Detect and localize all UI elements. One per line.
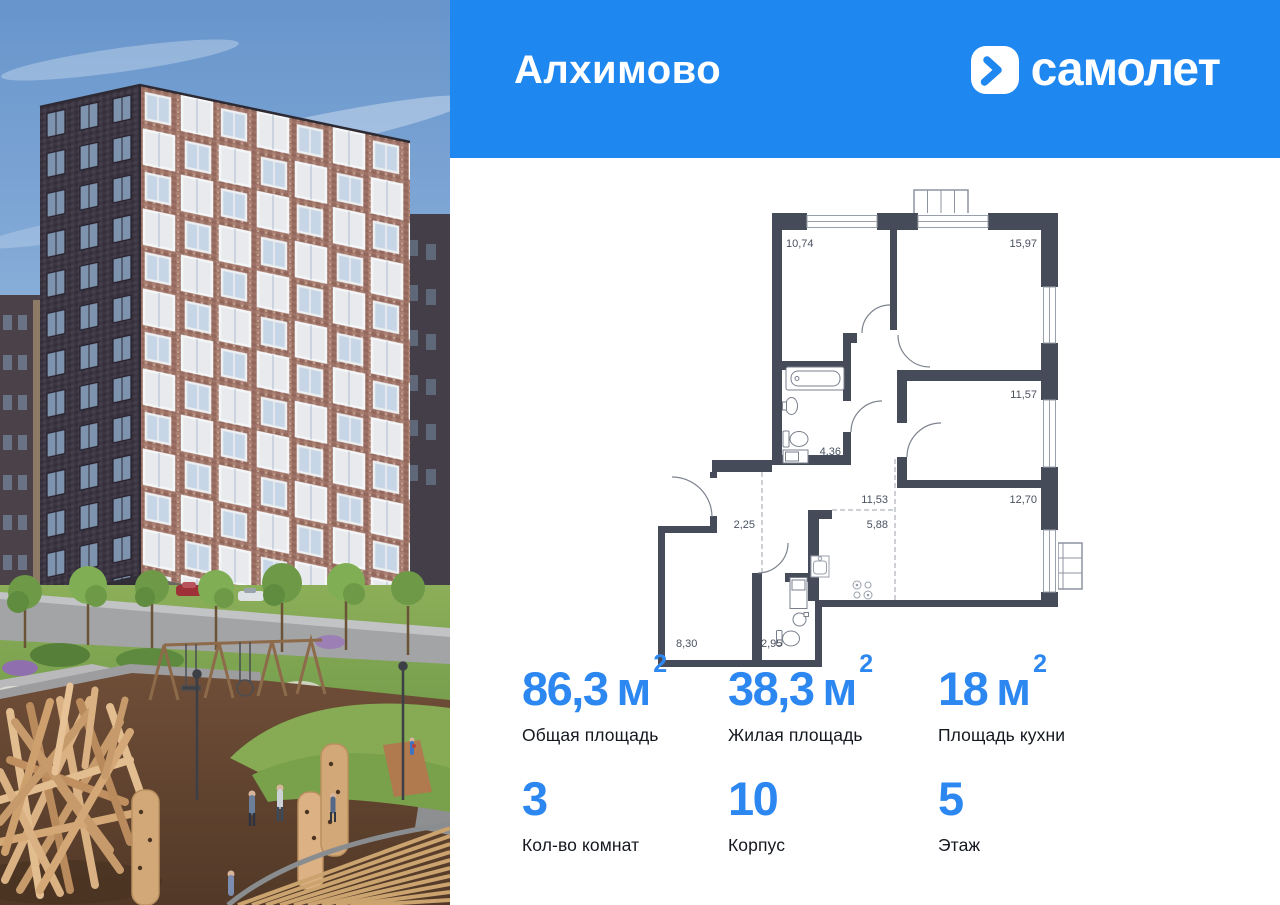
room-area-label: 11,57	[1010, 389, 1037, 401]
stat-total-area-value: 86,3м2	[522, 663, 727, 716]
bathroom-washer-icon	[783, 450, 808, 463]
room-area-label: 15,97	[1009, 238, 1037, 250]
stat-total-area-label: Общая площадь	[522, 725, 727, 746]
stat-floor: 5 Этаж	[938, 773, 1143, 856]
stat-floor-value: 5	[938, 773, 1143, 826]
room-area-label: 2,25	[734, 519, 755, 531]
stat-total-area: 86,3м2 Общая площадь	[522, 663, 727, 746]
room-area-label: 8,30	[676, 638, 697, 650]
building-photo	[0, 0, 450, 905]
ac-basket-icon	[1058, 543, 1082, 589]
stat-building-value: 10	[728, 773, 933, 826]
wc-sink-icon	[793, 613, 809, 627]
stat-building: 10 Корпус	[728, 773, 933, 856]
stat-kitchen-area: 18м2 Площадь кухни	[938, 663, 1143, 746]
listing-card: Алхимово самолет	[0, 0, 1280, 905]
samolet-logo-text: самолет	[1031, 46, 1220, 94]
stove-icon	[853, 581, 872, 599]
samolet-logo-icon	[971, 46, 1019, 94]
stat-living-area-value: 38,3м2	[728, 663, 933, 716]
stat-kitchen-area-value: 18м2	[938, 663, 1143, 716]
info-panel: Алхимово самолет	[450, 0, 1280, 905]
room-area-label: 10,74	[786, 238, 814, 250]
windows	[807, 213, 1058, 592]
kitchen-sink-icon	[811, 556, 829, 577]
bathroom-toilet-icon	[783, 431, 808, 447]
french-balcony-icon	[914, 190, 968, 214]
main-building-side-face	[40, 85, 140, 640]
samolet-logo: самолет	[971, 46, 1220, 94]
walls	[658, 213, 1058, 667]
floor-plan: 10,74 15,97 11,57 12,70 11,53 5,88 4,36 …	[630, 170, 1100, 670]
stat-kitchen-area-label: Площадь кухни	[938, 725, 1143, 746]
room-area-label: 5,88	[867, 519, 888, 531]
stat-building-label: Корпус	[728, 835, 933, 856]
room-area-labels: 10,74 15,97 11,57 12,70 11,53 5,88 4,36 …	[676, 238, 1037, 650]
floor-plan-drawing: 10,74 15,97 11,57 12,70 11,53 5,88 4,36 …	[630, 170, 1100, 670]
stat-rooms-count: 3 Кол-во комнат	[522, 773, 727, 856]
stat-rooms-count-value: 3	[522, 773, 727, 826]
bathroom-sink-icon	[783, 398, 798, 415]
room-area-label: 11,53	[861, 494, 888, 506]
building-photo-illustration	[0, 0, 450, 905]
bathtub-icon	[786, 367, 844, 390]
stat-living-area-label: Жилая площадь	[728, 725, 933, 746]
stat-floor-label: Этаж	[938, 835, 1143, 856]
wc-washer-icon	[790, 578, 807, 609]
room-area-label: 4,36	[820, 446, 841, 458]
room-area-label: 12,70	[1009, 494, 1037, 506]
stat-rooms-count-label: Кол-во комнат	[522, 835, 727, 856]
stat-living-area: 38,3м2 Жилая площадь	[728, 663, 933, 746]
project-title: Алхимово	[514, 48, 721, 93]
header-band: Алхимово самолет	[450, 0, 1280, 158]
room-area-label: 2,95	[761, 638, 782, 650]
